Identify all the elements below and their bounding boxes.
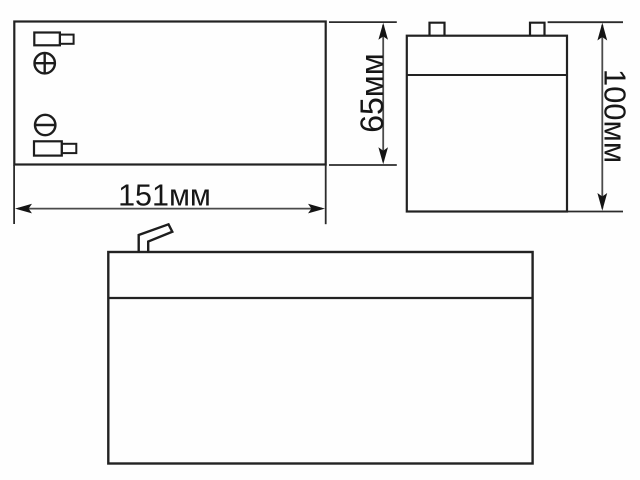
svg-text:100мм: 100мм: [598, 69, 633, 163]
svg-text:151мм: 151мм: [118, 179, 211, 213]
svg-text:65мм: 65мм: [354, 53, 390, 133]
